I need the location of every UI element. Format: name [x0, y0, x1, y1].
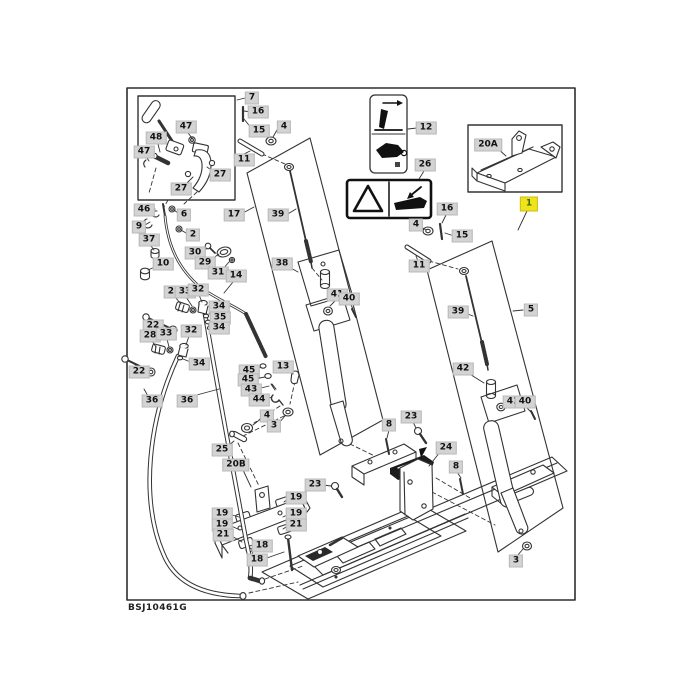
callout-36[interactable]: 36: [142, 395, 163, 408]
callout-14[interactable]: 14: [226, 270, 247, 283]
callout-44[interactable]: 44: [249, 394, 270, 407]
callout-16[interactable]: 16: [437, 203, 458, 216]
callout-11[interactable]: 11: [409, 260, 430, 273]
callout-47[interactable]: 47: [176, 121, 197, 134]
callout-39[interactable]: 39: [448, 306, 469, 319]
callout-46[interactable]: 46: [134, 204, 155, 217]
callout-2[interactable]: 2: [186, 229, 200, 242]
callout-23[interactable]: 23: [305, 479, 326, 492]
callout-25[interactable]: 25: [212, 444, 233, 457]
callout-11[interactable]: 11: [234, 154, 255, 167]
callout-5[interactable]: 5: [524, 304, 538, 317]
callout-20B[interactable]: 20B: [222, 459, 249, 472]
callout-7[interactable]: 7: [245, 92, 259, 105]
callout-8[interactable]: 8: [449, 461, 463, 474]
callout-48[interactable]: 48: [146, 132, 167, 145]
callout-40[interactable]: 40: [339, 293, 360, 306]
figure-code: BSJ10461G: [128, 603, 187, 613]
callout-34[interactable]: 34: [209, 322, 230, 335]
callout-21[interactable]: 21: [213, 529, 234, 542]
callout-38[interactable]: 38: [272, 258, 293, 271]
callout-39[interactable]: 39: [268, 209, 289, 222]
callout-22[interactable]: 22: [129, 366, 150, 379]
callout-34[interactable]: 34: [189, 358, 210, 371]
callout-37[interactable]: 37: [139, 234, 160, 247]
callout-4[interactable]: 4: [277, 121, 291, 134]
callout-1-highlighted[interactable]: 1: [520, 197, 538, 212]
callout-42[interactable]: 42: [453, 363, 474, 376]
callout-4[interactable]: 4: [409, 219, 423, 232]
parts-diagram: 7161541147484727271746692373010293114283…: [0, 0, 700, 700]
callout-32[interactable]: 32: [181, 325, 202, 338]
callout-33[interactable]: 33: [156, 328, 177, 341]
callout-17[interactable]: 17: [224, 209, 245, 222]
callout-23[interactable]: 23: [401, 411, 422, 424]
callout-21[interactable]: 21: [286, 519, 307, 532]
callout-27[interactable]: 27: [210, 169, 231, 182]
callout-18[interactable]: 18: [252, 540, 273, 553]
callout-3[interactable]: 3: [267, 420, 281, 433]
callout-26[interactable]: 26: [415, 159, 436, 172]
callout-3[interactable]: 3: [509, 555, 523, 568]
callout-12[interactable]: 12: [416, 122, 437, 135]
callout-6[interactable]: 6: [177, 209, 191, 222]
callout-9[interactable]: 9: [132, 221, 146, 234]
callout-8[interactable]: 8: [382, 419, 396, 432]
callout-18[interactable]: 18: [247, 554, 268, 567]
callout-layer: 7161541147484727271746692373010293114283…: [0, 0, 700, 700]
callout-19[interactable]: 19: [286, 492, 307, 505]
callout-15[interactable]: 15: [249, 125, 270, 138]
callout-24[interactable]: 24: [436, 442, 457, 455]
callout-10[interactable]: 10: [153, 258, 174, 271]
callout-16[interactable]: 16: [248, 106, 269, 119]
callout-36[interactable]: 36: [177, 395, 198, 408]
callout-27[interactable]: 27: [171, 183, 192, 196]
callout-13[interactable]: 13: [273, 361, 294, 374]
callout-47[interactable]: 47: [134, 146, 155, 159]
callout-15[interactable]: 15: [452, 230, 473, 243]
callout-20A[interactable]: 20A: [474, 139, 502, 152]
callout-40[interactable]: 40: [515, 396, 536, 409]
callout-32[interactable]: 32: [188, 284, 209, 297]
